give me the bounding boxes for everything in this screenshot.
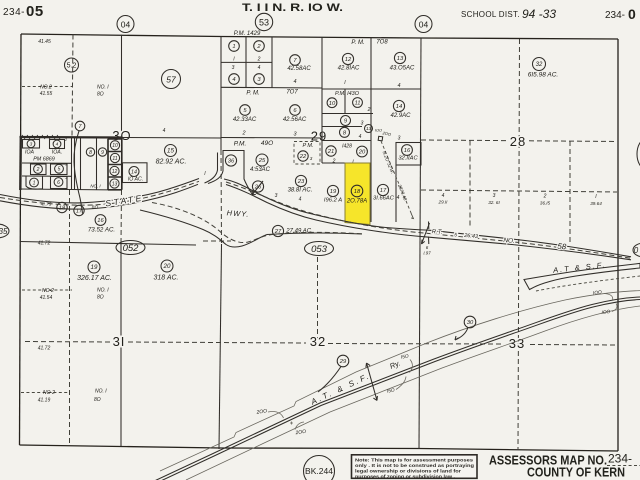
svg-text:4: 4 xyxy=(163,128,166,134)
svg-text:P.M.: P.M. xyxy=(234,141,247,148)
svg-text:1: 1 xyxy=(232,44,235,50)
svg-text:P. M.: P. M. xyxy=(351,40,364,46)
svg-text:3I: 3I xyxy=(113,334,126,349)
svg-text:38.8I AC.: 38.8I AC. xyxy=(288,188,313,194)
svg-text:IOO: IOO xyxy=(375,128,382,133)
svg-text:NO. I: NO. I xyxy=(90,184,101,189)
svg-text:25: 25 xyxy=(258,158,266,164)
svg-text:purposes of zoning or subdivis: purposes of zoning or subdivision law . xyxy=(355,474,456,480)
svg-text:82.92 AC.: 82.92 AC. xyxy=(156,159,187,166)
svg-text:052: 052 xyxy=(123,243,140,254)
svg-text:04: 04 xyxy=(121,20,131,30)
svg-text:234-: 234- xyxy=(3,7,25,18)
svg-text:36: 36 xyxy=(228,159,235,165)
svg-text:NO. I: NO. I xyxy=(97,288,109,294)
svg-text:P. M.: P. M. xyxy=(246,91,259,97)
svg-text:12: 12 xyxy=(112,169,118,175)
svg-text:3I.66AC: 3I.66AC xyxy=(373,196,395,202)
svg-text:8O: 8O xyxy=(94,397,101,403)
svg-text:3: 3 xyxy=(275,193,278,199)
svg-text:3: 3 xyxy=(310,156,313,161)
svg-text:2: 2 xyxy=(36,167,40,173)
svg-text:32. 6I: 32. 6I xyxy=(488,200,500,205)
svg-text:053: 053 xyxy=(311,244,328,255)
svg-text:20: 20 xyxy=(358,150,366,156)
svg-text:6: 6 xyxy=(57,180,60,186)
svg-text:NO.2: NO.2 xyxy=(40,85,52,91)
svg-text:P.M. I43O: P.M. I43O xyxy=(335,91,360,97)
svg-text:3: 3 xyxy=(232,65,235,71)
svg-text:29: 29 xyxy=(311,129,327,144)
svg-text:7O7: 7O7 xyxy=(286,90,298,96)
svg-text:14: 14 xyxy=(396,104,402,110)
svg-text:2: 2 xyxy=(257,57,261,63)
svg-text:17: 17 xyxy=(380,188,387,194)
svg-text:58: 58 xyxy=(557,242,567,252)
svg-text:BK.244: BK.244 xyxy=(305,466,333,476)
svg-text:41.72: 41.72 xyxy=(38,241,51,247)
svg-text:19: 19 xyxy=(91,264,98,271)
svg-text:Note: This map is for assessme: Note: This map is for assessment purpose… xyxy=(355,457,473,463)
svg-text:4: 4 xyxy=(442,193,445,199)
svg-text:3: 3 xyxy=(493,193,496,199)
svg-text:IO AC.: IO AC. xyxy=(128,177,143,183)
svg-text:2: 2 xyxy=(367,107,371,113)
svg-text:5: 5 xyxy=(58,167,61,173)
svg-text:42.58AC: 42.58AC xyxy=(287,66,311,72)
svg-text:20: 20 xyxy=(163,263,171,270)
svg-text:IOA.: IOA. xyxy=(52,150,62,156)
svg-text:4: 4 xyxy=(293,79,296,85)
svg-text:326.17 AC.: 326.17 AC. xyxy=(77,275,112,282)
svg-text:COUNTY OF KERN: COUNTY OF KERN xyxy=(527,466,625,480)
svg-text:04: 04 xyxy=(419,20,429,30)
svg-text:36.I5: 36.I5 xyxy=(540,201,551,206)
svg-text:4: 4 xyxy=(56,142,59,148)
svg-text:234-: 234- xyxy=(605,10,625,21)
svg-text:4: 4 xyxy=(397,195,400,201)
svg-text:4: 4 xyxy=(397,83,400,89)
svg-text:12: 12 xyxy=(345,57,352,63)
svg-text:4: 4 xyxy=(299,197,302,203)
svg-text:legal ownership or divisions o: legal ownership or divisions of land for xyxy=(355,468,461,474)
svg-text:T. I I N. R. IO W.: T. I I N. R. IO W. xyxy=(242,2,343,14)
svg-text:21: 21 xyxy=(327,149,334,155)
svg-text:8O: 8O xyxy=(97,295,104,301)
svg-text:only . It is not to be constru: only . It is not to be construed as port… xyxy=(355,463,474,469)
svg-text:SCHOOL DIST.: SCHOOL DIST. xyxy=(461,10,520,19)
svg-text:43.O5AC: 43.O5AC xyxy=(390,66,415,72)
svg-text:32.IIAC: 32.IIAC xyxy=(398,156,418,162)
svg-text:PM 6869: PM 6869 xyxy=(33,157,55,163)
svg-text:4I.75: 4I.75 xyxy=(41,202,52,208)
svg-text:NO-2: NO-2 xyxy=(42,288,54,294)
svg-text:05: 05 xyxy=(26,3,44,20)
svg-text:5.2: 5.2 xyxy=(67,63,77,70)
svg-text:4: 4 xyxy=(232,77,235,83)
svg-text:234-: 234- xyxy=(608,452,632,466)
svg-text:10: 10 xyxy=(112,143,118,149)
svg-text:2: 2 xyxy=(543,194,547,200)
svg-text:3: 3 xyxy=(361,121,364,127)
svg-text:4:53AC: 4:53AC xyxy=(250,167,271,173)
svg-text:28: 28 xyxy=(510,134,526,149)
svg-text:11: 11 xyxy=(112,156,117,162)
svg-text:NO-2: NO-2 xyxy=(43,390,55,396)
svg-text:41.55: 41.55 xyxy=(40,91,53,97)
svg-text:73.52 AC.: 73.52 AC. xyxy=(88,227,115,234)
svg-text:2: 2 xyxy=(241,131,245,137)
svg-text:3: 3 xyxy=(30,142,33,148)
svg-text:41.45: 41.45 xyxy=(38,39,51,45)
svg-text:4: 4 xyxy=(258,65,261,71)
svg-text:49O: 49O xyxy=(261,140,273,147)
svg-text:I.97: I.97 xyxy=(423,251,431,256)
svg-text:4: 4 xyxy=(359,134,362,140)
svg-text:42.9AC: 42.9AC xyxy=(390,113,411,119)
svg-text:23: 23 xyxy=(297,179,305,185)
svg-text:57: 57 xyxy=(166,75,176,85)
svg-text:1: 1 xyxy=(33,180,36,186)
svg-text:39.64: 39.64 xyxy=(590,201,602,206)
svg-text:13: 13 xyxy=(366,126,372,131)
svg-text:I96.2 A: I96.2 A xyxy=(324,198,342,204)
svg-text:13: 13 xyxy=(397,56,404,62)
svg-text:13: 13 xyxy=(112,181,118,187)
svg-text:32: 32 xyxy=(536,62,543,68)
svg-text:8: 8 xyxy=(89,150,92,156)
svg-text:NO. I: NO. I xyxy=(97,85,109,91)
svg-text:19: 19 xyxy=(330,189,337,195)
svg-text:IOO: IOO xyxy=(601,309,611,316)
svg-text:IOA: IOA xyxy=(25,150,34,156)
svg-text:18: 18 xyxy=(354,189,361,195)
svg-text:IOO: IOO xyxy=(593,290,603,297)
svg-text:318 AC.: 318 AC. xyxy=(153,275,178,282)
svg-text:29.II: 29.II xyxy=(438,200,449,205)
svg-text:0: 0 xyxy=(628,6,636,22)
svg-text:41.19: 41.19 xyxy=(38,398,51,404)
svg-text:42.56AC: 42.56AC xyxy=(283,117,307,123)
svg-text:16: 16 xyxy=(404,148,411,154)
svg-text:7O8: 7O8 xyxy=(376,40,388,46)
svg-text:P.M. 1429: P.M. 1429 xyxy=(234,31,261,37)
svg-text:2O.78A: 2O.78A xyxy=(346,199,367,205)
svg-text:15: 15 xyxy=(167,148,174,155)
svg-text:16: 16 xyxy=(97,218,104,224)
svg-text:29: 29 xyxy=(339,359,347,365)
svg-text:3: 3 xyxy=(398,136,401,142)
svg-text:10: 10 xyxy=(329,101,336,107)
svg-text:P M.: P M. xyxy=(302,143,313,149)
svg-text:35: 35 xyxy=(0,227,8,236)
svg-text:22: 22 xyxy=(299,154,307,160)
svg-text:14: 14 xyxy=(131,169,137,175)
svg-text:94 -33: 94 -33 xyxy=(522,7,556,21)
svg-text:NO.: NO. xyxy=(503,237,515,245)
svg-text:11: 11 xyxy=(354,101,360,107)
svg-text:32: 32 xyxy=(310,334,326,349)
svg-text:NO. I: NO. I xyxy=(95,389,107,395)
svg-text:53: 53 xyxy=(259,18,269,28)
svg-text:30: 30 xyxy=(467,320,474,326)
svg-text:2: 2 xyxy=(332,159,336,165)
svg-text:42.8IAC: 42.8IAC xyxy=(338,66,360,72)
svg-text:6I5.98 AC.: 6I5.98 AC. xyxy=(528,72,559,79)
svg-text:41.54: 41.54 xyxy=(40,295,53,301)
svg-text:42.33AC: 42.33AC xyxy=(233,117,257,123)
svg-text:HWY.: HWY. xyxy=(226,208,249,219)
svg-text:9: 9 xyxy=(101,150,104,156)
svg-text:0: 0 xyxy=(634,246,639,255)
svg-text:8O: 8O xyxy=(97,92,104,98)
svg-text:R.T.: R.T. xyxy=(431,229,442,236)
svg-text:41.72: 41.72 xyxy=(38,346,51,352)
svg-text:I428: I428 xyxy=(342,144,352,150)
